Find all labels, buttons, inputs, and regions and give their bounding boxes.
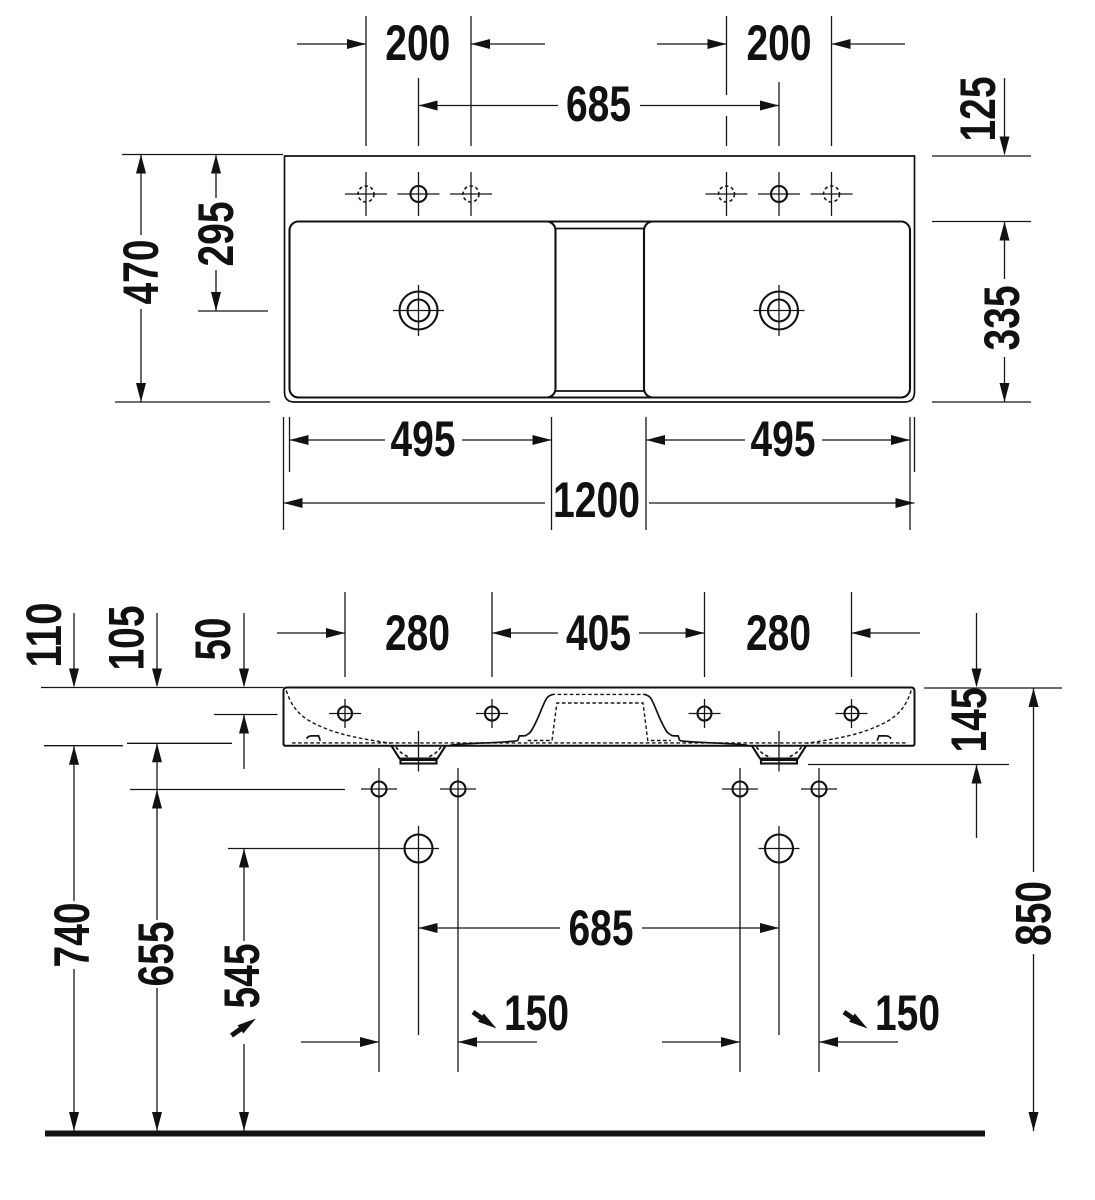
svg-text:685: 685 <box>569 900 634 956</box>
svg-text:470: 470 <box>113 240 169 305</box>
svg-text:740: 740 <box>44 903 100 968</box>
svg-text:145: 145 <box>941 688 997 753</box>
svg-text:495: 495 <box>751 411 816 467</box>
svg-text:125: 125 <box>950 77 1006 142</box>
svg-text:545: 545 <box>214 944 270 1009</box>
svg-text:280: 280 <box>385 605 450 661</box>
svg-text:105: 105 <box>99 606 155 671</box>
svg-text:1200: 1200 <box>553 472 640 528</box>
svg-text:50: 50 <box>185 618 241 661</box>
svg-text:685: 685 <box>566 76 631 132</box>
svg-text:655: 655 <box>128 922 184 987</box>
svg-text:200: 200 <box>747 15 812 71</box>
svg-text:850: 850 <box>1006 881 1062 946</box>
svg-text:110: 110 <box>16 603 72 668</box>
svg-text:200: 200 <box>385 15 450 71</box>
svg-text:150: 150 <box>875 985 940 1041</box>
svg-text:295: 295 <box>188 202 244 267</box>
svg-text:280: 280 <box>746 605 811 661</box>
svg-text:150: 150 <box>504 985 569 1041</box>
svg-text:335: 335 <box>974 286 1030 351</box>
svg-text:405: 405 <box>566 605 631 661</box>
svg-text:495: 495 <box>391 411 456 467</box>
